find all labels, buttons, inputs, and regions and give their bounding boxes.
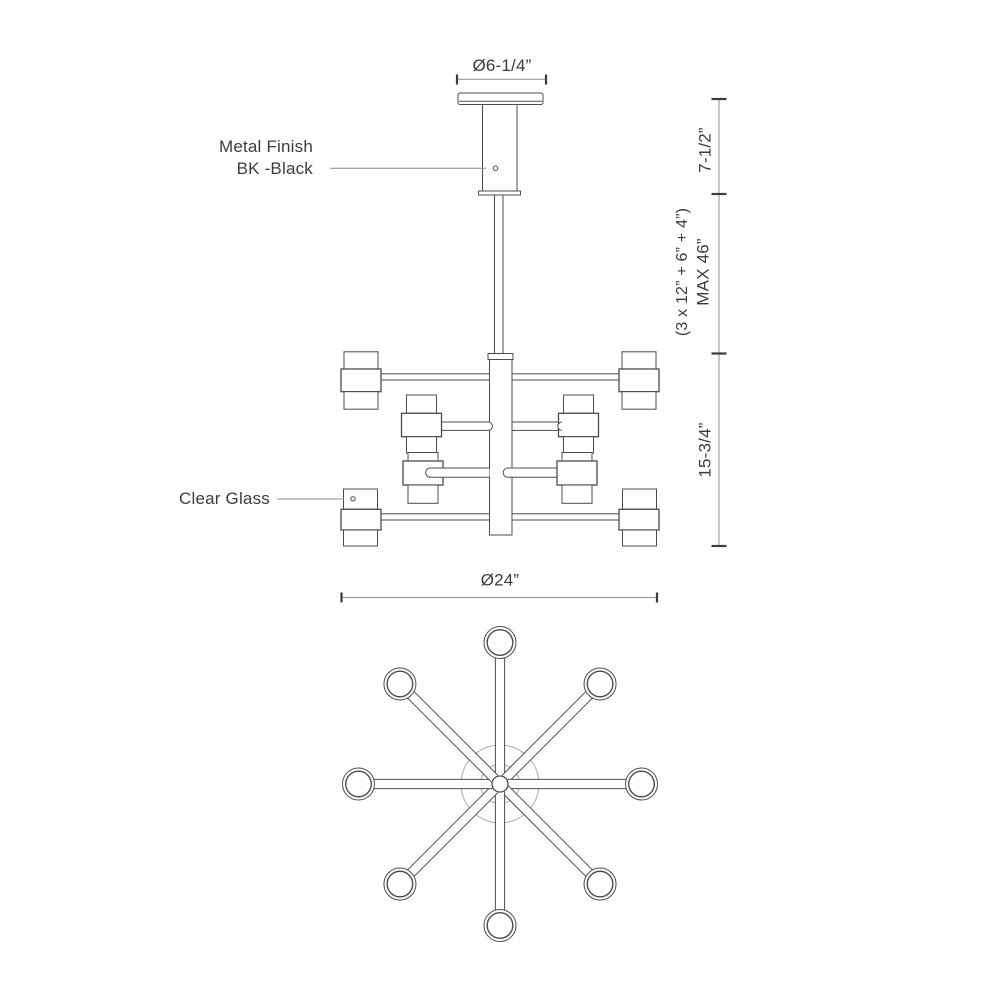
plan-lamp-outer-ring <box>484 627 516 659</box>
lamp-top-left <box>341 352 381 409</box>
clear-glass-label: Clear Glass <box>179 489 270 508</box>
callouts: Metal Finish BK -Black Clear Glass <box>179 137 486 508</box>
lamp-cap-top <box>622 352 656 370</box>
lamp-cap-bottom <box>562 485 592 503</box>
mid-arm-lower-right <box>503 468 559 477</box>
plan-view <box>343 627 658 942</box>
lamp-cap-top <box>562 453 592 462</box>
plan-lamp-outer-ring <box>343 768 375 800</box>
plan-spoke-s <box>484 792 516 942</box>
column-collar <box>488 354 513 360</box>
lamp-cap-bottom <box>623 530 657 546</box>
body-height-value: 15-3/4” <box>696 422 715 477</box>
lamp-mid-upper-left <box>402 395 442 453</box>
plan-arm-fill <box>502 691 593 782</box>
lamp-cap-bottom <box>622 392 656 410</box>
side-elevation-view <box>341 93 659 546</box>
canopy-body <box>483 105 518 192</box>
plan-spoke-se <box>494 778 623 907</box>
mid-arm-upper-right <box>512 422 562 430</box>
suspension-max-value: MAX 46” <box>694 238 713 306</box>
plan-spoke-nw <box>377 661 506 790</box>
lamp-glass <box>341 369 381 392</box>
canopy-base-flange <box>479 191 521 195</box>
lamp-cap-top <box>623 489 657 509</box>
lamp-cap-bottom <box>408 485 438 503</box>
dimension-canopy-diameter: Ø6-1/4” <box>457 56 546 85</box>
lamp-cap-bottom <box>564 437 594 453</box>
plan-arm-fill <box>502 786 593 877</box>
plan-lamp-outer-ring <box>484 910 516 942</box>
lamp-cap-top <box>344 489 378 509</box>
lamp-cap-top <box>564 395 594 413</box>
mid-arm-upper-left <box>437 422 492 430</box>
lamp-cap-top <box>407 395 437 413</box>
lamp-glass <box>402 413 442 436</box>
plan-spoke-e <box>508 768 658 800</box>
lamp-cap-top <box>344 352 378 370</box>
canopy-height-value: 7-1/2” <box>696 127 715 173</box>
plan-arm-fill <box>373 779 493 788</box>
canopy-diameter-value: Ø6-1/4” <box>472 56 531 75</box>
mid-arm-upper-right-socket <box>558 422 562 430</box>
lamp-mid-lower-right <box>557 453 597 504</box>
canopy-plate <box>458 93 543 105</box>
dimension-body-diameter: Ø24” <box>342 571 658 603</box>
plan-center-hub <box>492 776 508 792</box>
plan-spoke-ne <box>494 661 623 790</box>
lamp-mid-upper-right <box>559 395 599 453</box>
lamp-mid-lower-left <box>403 453 443 504</box>
technical-drawing: Metal Finish BK -Black Clear Glass Ø6-1/… <box>0 0 1000 1000</box>
lamp-cap-bottom <box>407 437 437 453</box>
lamp-cap-bottom <box>344 530 378 546</box>
plan-arm-fill <box>407 691 498 782</box>
lamp-glass <box>341 509 381 530</box>
lamp-bottom-left <box>341 489 381 546</box>
mid-arm-lower-left <box>426 468 490 477</box>
metal-finish-label-line1: Metal Finish <box>219 137 313 156</box>
lamp-glass <box>619 509 659 530</box>
plan-arm-fill <box>407 786 498 877</box>
lamp-cap-top <box>408 453 438 462</box>
suspension-breakdown-value: (3 x 12” + 6” + 4”) <box>674 208 691 336</box>
center-column <box>490 360 513 536</box>
lamp-glass <box>557 461 597 485</box>
lamp-glass <box>559 413 599 436</box>
plan-arm-fill <box>508 779 628 788</box>
lamp-top-right <box>619 352 659 409</box>
plan-arm-fill <box>495 657 504 777</box>
plan-spoke-w <box>343 768 493 800</box>
dimension-right-stack: 7-1/2” MAX 46” (3 x 12” + 6” + 4”) 15-3/… <box>674 99 727 546</box>
plan-lamp-outer-ring <box>626 768 658 800</box>
body-diameter-value: Ø24” <box>481 571 520 590</box>
lamp-cap-bottom <box>344 392 378 410</box>
suspension-rod <box>495 195 504 354</box>
plan-arm-fill <box>495 792 504 912</box>
metal-finish-label-line2: BK -Black <box>237 159 314 178</box>
lamp-bottom-right <box>619 489 659 546</box>
chandelier-spec-sheet: Metal Finish BK -Black Clear Glass Ø6-1/… <box>0 0 1000 1000</box>
plan-spoke-sw <box>377 778 506 907</box>
plan-spoke-n <box>484 627 516 777</box>
lamp-glass <box>619 369 659 392</box>
